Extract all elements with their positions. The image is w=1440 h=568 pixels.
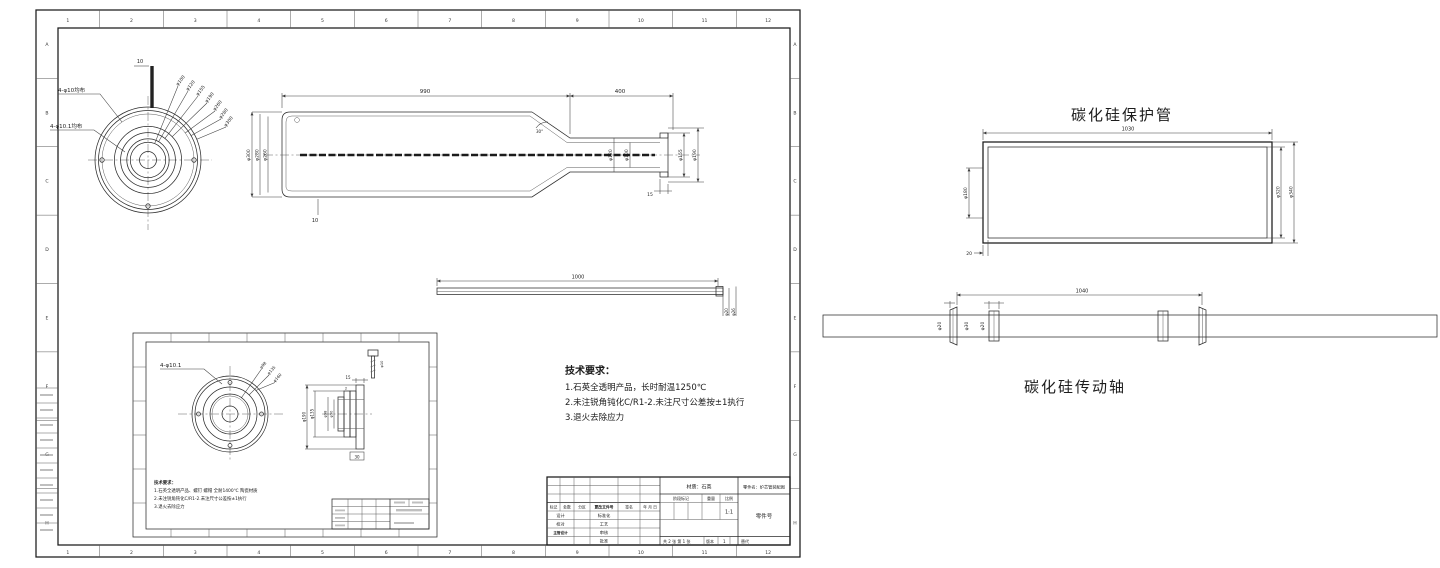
dia-340: φ340 (1289, 186, 1295, 198)
dia-120: φ120 (608, 149, 614, 161)
grid-label: 11 (702, 18, 708, 24)
tb-design: 设计 (556, 512, 564, 519)
cad-drawing-canvas: 112233445566778899101011111212AABBCCDDEE… (0, 0, 1440, 568)
grid-label: 7 (448, 550, 451, 556)
tb-sheets: 共 2 张 第 1 张 (663, 538, 690, 544)
grid-label: E (46, 315, 49, 321)
grid-label: 12 (765, 550, 771, 556)
grid-label: H (793, 521, 796, 527)
grid-label: A (45, 42, 49, 48)
grid-label: 8 (512, 18, 515, 24)
inset-dim-15: 15 (345, 375, 351, 380)
grid-tick (40, 394, 53, 396)
dia-320: φ320 (1276, 186, 1282, 198)
dia-100: φ100 (624, 149, 630, 161)
grid-label: B (45, 110, 48, 116)
protect-tube-title: 碳化硅保护管 (1071, 106, 1173, 124)
engineering-drawing: 112233445566778899101011111212AABBCCDDEE… (0, 0, 1440, 568)
grid-tick (40, 439, 53, 441)
grid-label: 11 (702, 550, 708, 556)
inset-radial-dim: φ98 (259, 360, 268, 369)
grid-label: 6 (385, 18, 388, 24)
grid-label: 9 (576, 18, 579, 24)
grid-label: G (793, 452, 797, 458)
tb-mark: 标记 (550, 504, 558, 509)
grid-label: D (793, 247, 797, 253)
radial-dim: φ155 (195, 84, 207, 97)
dia-280: φ280 (255, 149, 261, 161)
grid-label: 4 (257, 18, 260, 24)
tb-chief: 主管设计 (553, 530, 568, 535)
inset-sheet: 4-φ10.1 φ98 φ135 φ160 φ190 φ135 φ98 φ90 … (133, 333, 437, 537)
tb-scale: 比例 (725, 495, 733, 501)
grid-label: 2 (130, 550, 133, 556)
shaft-dia-20a: φ20 (937, 322, 943, 331)
dim-10-top: 10 (137, 59, 143, 65)
grid-label: 3 (194, 550, 197, 556)
grid-label: F (46, 384, 49, 390)
grid-label: E (794, 315, 797, 321)
inset-title-block (332, 499, 429, 529)
inset-radial-dim: φ160 (272, 372, 283, 383)
dim-1000: 1000 (572, 275, 585, 281)
title-block: 标记 处数 分区 更改文件号 签名 年 月 日 设计 校对 主管设计 标准化 工… (547, 477, 790, 545)
radial-dim: φ100 (175, 74, 187, 87)
tb-material: 材质：石英 (686, 484, 711, 491)
grid-tick (40, 409, 53, 411)
grid-label: 10 (638, 550, 644, 556)
inset-dia-135: φ135 (310, 408, 315, 419)
drive-shaft-view: 1040 φ20 φ30 φ20 碳化硅传动轴 (823, 289, 1437, 397)
tech-req-line2: 2.未注锐角钝化C/R1-2.未注尺寸公差按±1执行 (565, 397, 745, 408)
grid-label: F (794, 384, 797, 390)
tb-approve: 批准 (600, 537, 608, 544)
tb-replace: 替代 (741, 538, 749, 544)
tech-requirements: 技术要求： 1.石英全透明产品，长时耐温1250℃ 2.未注锐角钝化C/R1-2… (565, 364, 745, 423)
grid-label: 10 (638, 18, 644, 24)
dia-190: φ190 (692, 149, 698, 161)
tb-stage: 阶段标记 (673, 495, 689, 501)
inset-dia-90: φ90 (330, 410, 334, 418)
dim-wall-10: 10 (312, 218, 318, 224)
dim-990: 990 (420, 89, 431, 95)
tb-part-name: 零件名：炉芯管装配图 (743, 484, 785, 491)
dim-1030: 1030 (1122, 127, 1135, 133)
tube-side-view: 990 400 φ300 φ280 φ260 φ120 φ100 φ155 φ1… (246, 89, 704, 224)
dim-angle: 30° (536, 129, 543, 134)
shaft-dia-20b: φ20 (980, 322, 986, 331)
holes-inner-label: 4-φ10.1均布 (50, 122, 83, 130)
grid-tick (40, 514, 53, 516)
grid-label: 8 (512, 550, 515, 556)
tb-sign: 签名 (625, 504, 633, 509)
radial-dim: φ190 (204, 91, 216, 104)
grid-label: 2 (130, 18, 133, 24)
tb-date: 年 月 日 (643, 504, 657, 509)
grid-label: D (45, 247, 49, 253)
dia-260: φ260 (263, 149, 269, 161)
grid-label: 9 (576, 550, 579, 556)
inset-holes-label: 4-φ10.1 (160, 363, 181, 369)
dia-155: φ155 (678, 149, 684, 161)
grid-label: C (793, 179, 796, 185)
tech-req-line1: 1.石英全透明产品，长时耐温1250℃ (565, 382, 707, 393)
tb-audit: 审核 (600, 529, 609, 536)
tb-version-value: 1 (723, 539, 726, 544)
radial-dim: φ120 (185, 79, 197, 92)
grid-label: 6 (385, 550, 388, 556)
inset-tech-title: 技术要求： (154, 479, 176, 486)
tb-qty: 处数 (563, 504, 571, 509)
grid-label: 1 (66, 18, 69, 24)
inset-dia-190: φ190 (302, 411, 307, 422)
shaft-dia-30: φ30 (964, 322, 970, 331)
inset-tech-line1: 1.石英全透明产品、螺钉 螺帽 全耐1400℃ 陶瓷材质 (154, 487, 258, 494)
dim-20: 20 (966, 251, 972, 257)
grid-label: 5 (321, 550, 324, 556)
grid-tick (40, 499, 53, 501)
inset-tech-line3: 3.退火去除应力 (154, 503, 185, 510)
grid-label: 5 (321, 18, 324, 24)
radial-dim: φ260 (212, 99, 224, 112)
inset-dim-30: 30 (354, 455, 360, 460)
grid-tick (40, 529, 53, 531)
holes-outer-label: 4-φ10均布 (58, 86, 86, 94)
tb-weight: 重量 (707, 495, 715, 501)
rod-dia-26: φ26 (731, 308, 736, 316)
tb-file-no: 更改文件号 (595, 504, 614, 509)
grid-label: C (45, 179, 48, 185)
inset-dia-98: φ98 (324, 410, 328, 418)
tech-req-title: 技术要求： (565, 364, 615, 377)
grid-label: B (793, 110, 796, 116)
inset-radial-dim: φ135 (266, 364, 277, 375)
grid-label: A (793, 42, 797, 48)
protect-tube-view: 碳化硅保护管 1030 φ180 φ320 φ340 20 (963, 106, 1298, 257)
tech-req-line3: 3.退火去除应力 (565, 412, 624, 423)
rod-view: 1000 φ20 φ26 (437, 275, 736, 317)
tb-zone: 分区 (578, 504, 586, 509)
dim-1040: 1040 (1076, 289, 1089, 295)
grid-tick (40, 454, 53, 456)
inset-tech-line2: 2.未注锐角钝化C/R1-2.未注尺寸公差按±1执行 (154, 495, 247, 502)
tb-check: 校对 (556, 520, 564, 527)
tb-part-no: 零件号 (756, 512, 773, 520)
grid-label: H (45, 521, 48, 527)
rod-dia-20: φ20 (724, 308, 729, 316)
grid-label: 1 (66, 550, 69, 556)
grid-label: 12 (765, 18, 771, 24)
inset-bolt-dia: φ10 (380, 360, 384, 368)
grid-tick (40, 469, 53, 471)
end-view: 10 4-φ10均布 4-φ10.1均布 φ100 φ120 φ155 φ190… (50, 59, 235, 230)
tb-process: 工艺 (600, 521, 608, 526)
grid-tick (40, 424, 53, 426)
dia-180: φ180 (963, 187, 969, 199)
grid-label: 7 (448, 18, 451, 24)
dim-400: 400 (615, 89, 626, 95)
tb-scale-value: 1:1 (725, 510, 733, 516)
tb-version: 版本 (706, 538, 714, 544)
grid-label: 4 (257, 550, 260, 556)
grid-label: 3 (194, 18, 197, 24)
dia-300: φ300 (246, 149, 252, 161)
drive-shaft-title: 碳化硅传动轴 (1024, 378, 1126, 396)
grid-tick (40, 484, 53, 486)
tb-std: 标准化 (598, 512, 611, 519)
inset-dim-2: 2 (345, 387, 347, 391)
dim-15: 15 (647, 192, 653, 198)
